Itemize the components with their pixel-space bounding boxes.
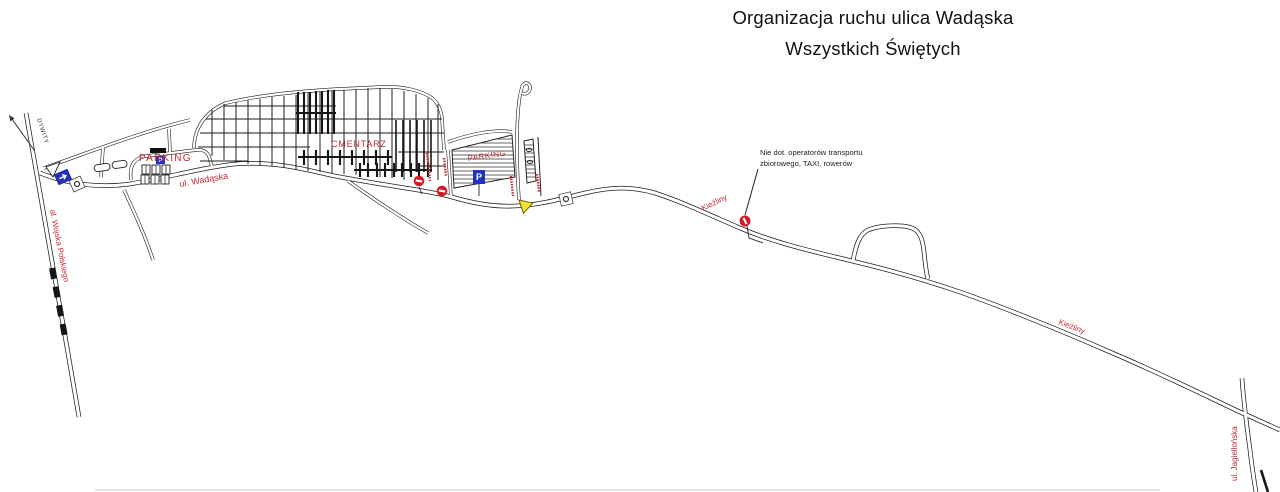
parking-east-area [452, 135, 541, 196]
road-casings [26, 83, 1280, 492]
arrowhead-icon [9, 115, 15, 121]
parking-west-rows [141, 165, 170, 184]
exception-note: Nie dot. operatorów transportu zbioroweg… [745, 148, 863, 215]
label-kiezliny-north: Kieźliny [700, 193, 729, 213]
road-junction-stub [124, 190, 153, 260]
road-network [26, 83, 1280, 492]
label-cmentarz: CMENTARZ [331, 139, 387, 149]
label-parking-west: PARKING [139, 153, 192, 164]
traffic-organization-plan: { "title": { "line1": "Organizacja ruchu… [0, 0, 1280, 492]
parking-east-access-left [448, 150, 451, 197]
road-stub-bottom-right [1261, 470, 1268, 492]
road-wadaska-kiezliny [40, 163, 1280, 430]
connector-1 [169, 129, 170, 152]
no-entry-sign-icon-1 [413, 175, 425, 187]
cemetery-boundary-road [194, 87, 444, 150]
note-line-1: Nie dot. operatorów transportu [760, 148, 863, 157]
traffic-plan-map: P P DYWITY N [0, 0, 1280, 492]
note-line-2: zbiorowego, TAXI, rowerów [760, 159, 853, 168]
direction-label: DYWITY [35, 118, 49, 145]
label-ul-jagiellonska: ul. Jagiellońska [1230, 426, 1239, 481]
svg-text:P: P [476, 172, 482, 182]
parking-sign-icon: P [473, 170, 485, 196]
road-wadaska-kiezliny [40, 163, 1280, 430]
sign-plate-icon-mid [559, 192, 573, 206]
note-leader-line [745, 169, 758, 215]
road-jagiellonska [1242, 378, 1256, 492]
cemetery-boundary-road [194, 87, 444, 150]
